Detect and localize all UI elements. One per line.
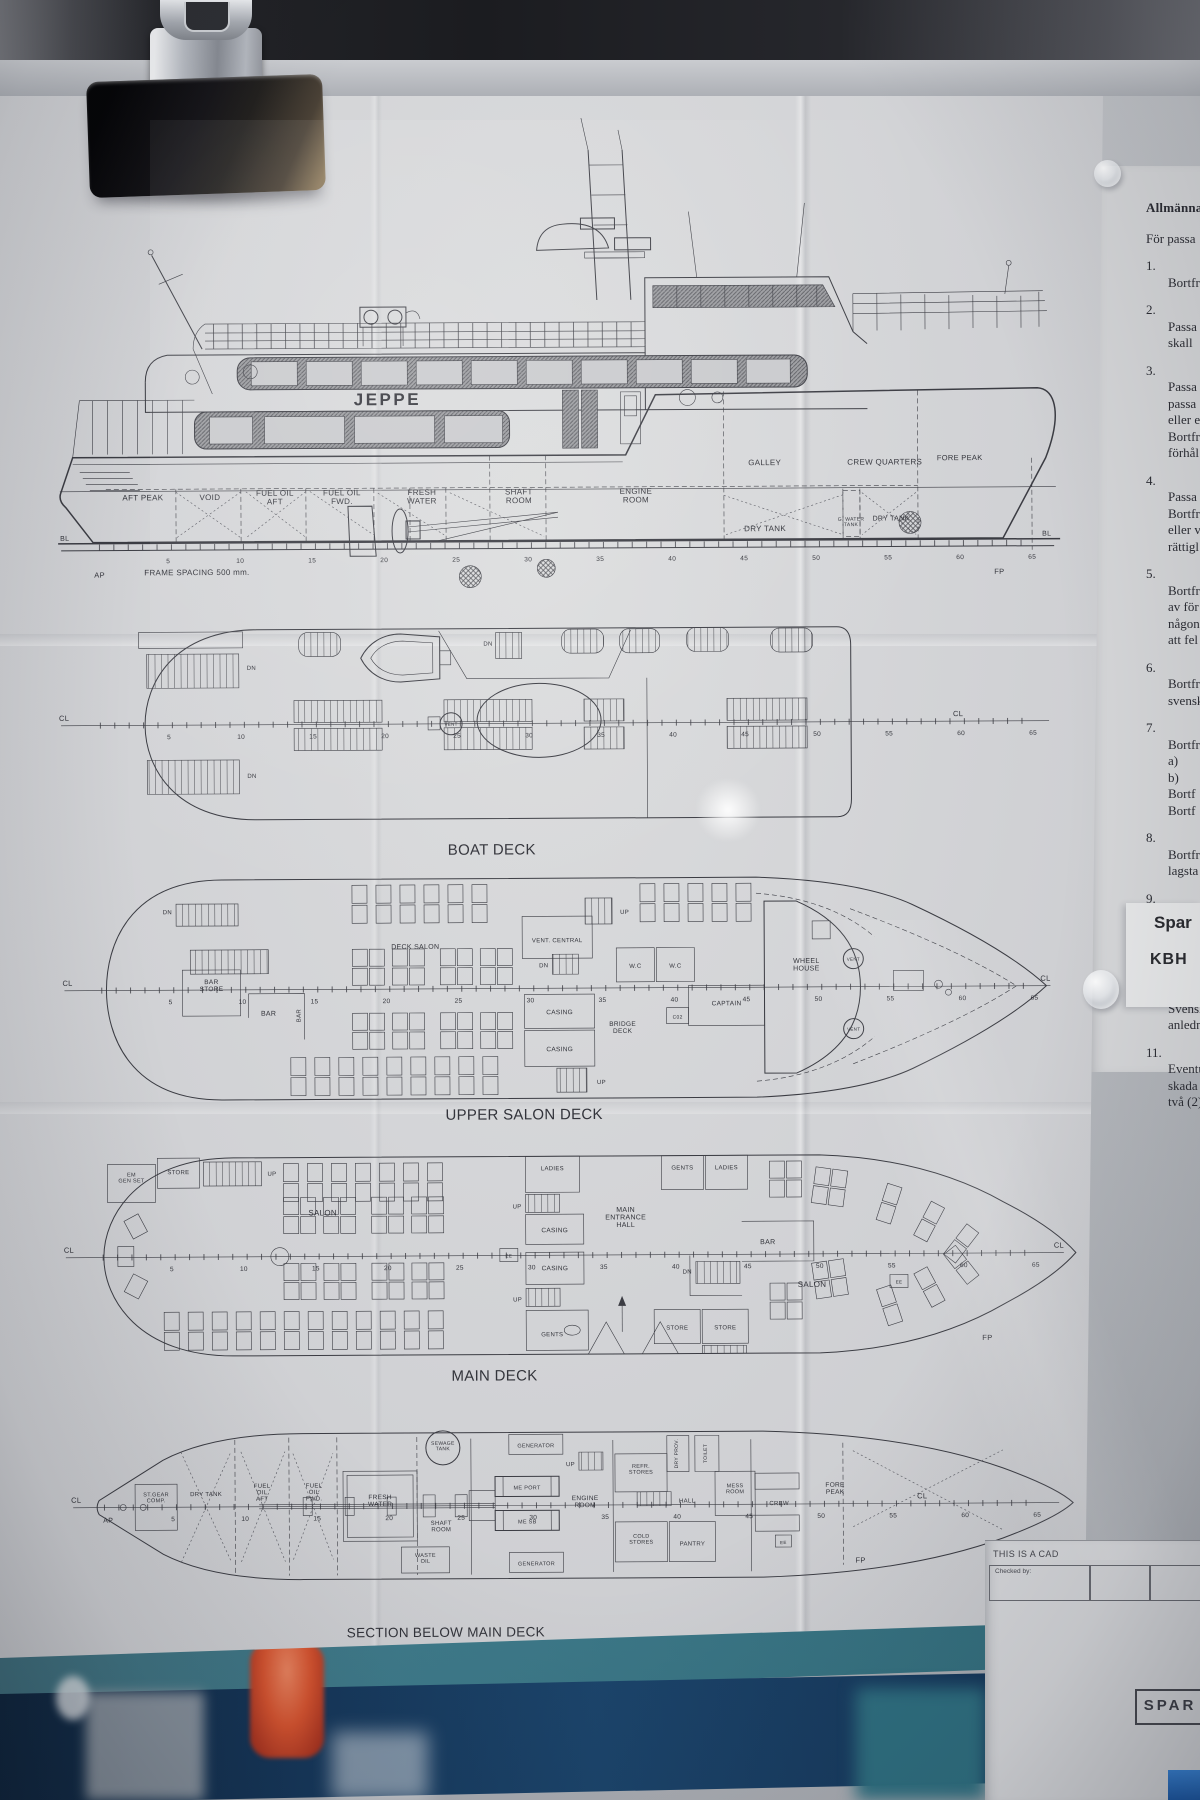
- conditions-item: 3.Passapassaeller eBortfrförhål: [1146, 363, 1200, 462]
- glass-glare-spot: [692, 780, 764, 840]
- clamp-slot: [184, 2, 230, 32]
- checked-by-label: Checked by:: [995, 1568, 1031, 1575]
- blue-chip: [1168, 1770, 1200, 1800]
- glass-reflection: [86, 1692, 204, 1800]
- paper-crease: [0, 1102, 1095, 1114]
- drawing-title-block: THIS IS A CAD Checked by: SPAR: [985, 1540, 1200, 1800]
- paper-crease: [370, 96, 382, 1656]
- conditions-item: 4.PassaBortfreller vrättigl: [1146, 473, 1200, 556]
- spar-stamp: SPAR: [1135, 1689, 1200, 1725]
- glass-reflection: [332, 1732, 428, 1800]
- note-line-1: Spar: [1154, 913, 1192, 933]
- conditions-header: Allmänna: [1146, 200, 1200, 217]
- glass-reflection: [856, 1688, 986, 1800]
- note-card: Spar KBH: [1126, 903, 1200, 1007]
- conditions-intro: För passa: [1146, 231, 1200, 248]
- conditions-item: 2.Passaskall: [1146, 302, 1200, 352]
- glass-reflection: [56, 1676, 90, 1720]
- orange-object-reflection: [250, 1642, 324, 1758]
- conditions-item: 11.Eventuskada etvå (2): [1146, 1045, 1200, 1111]
- note-line-2: KBH: [1150, 951, 1188, 969]
- glass-magnet: [1094, 160, 1121, 187]
- conditions-item: 1.Bortfr: [1146, 258, 1200, 291]
- binder-clip: [86, 74, 326, 198]
- conditions-item: 7.Bortfra)b)BortfBortf: [1146, 720, 1200, 819]
- glass-magnet: [1083, 970, 1119, 1009]
- photo-of-ship-blueprint: JEPPE AFT PEAK VOID FUEL OILAFT FUEL OIL…: [0, 0, 1200, 1800]
- conditions-item: 6.Bortfrsvensk: [1146, 660, 1200, 710]
- conditions-item: 5.Bortfrav förnågonatt fel: [1146, 566, 1200, 649]
- paper-crease: [795, 96, 811, 1656]
- conditions-item: 8.Bortfrlagsta: [1146, 830, 1200, 880]
- cad-note: THIS IS A CAD: [993, 1549, 1059, 1559]
- blueprint-paper: [0, 0, 1200, 1800]
- paper-crease: [0, 634, 1103, 646]
